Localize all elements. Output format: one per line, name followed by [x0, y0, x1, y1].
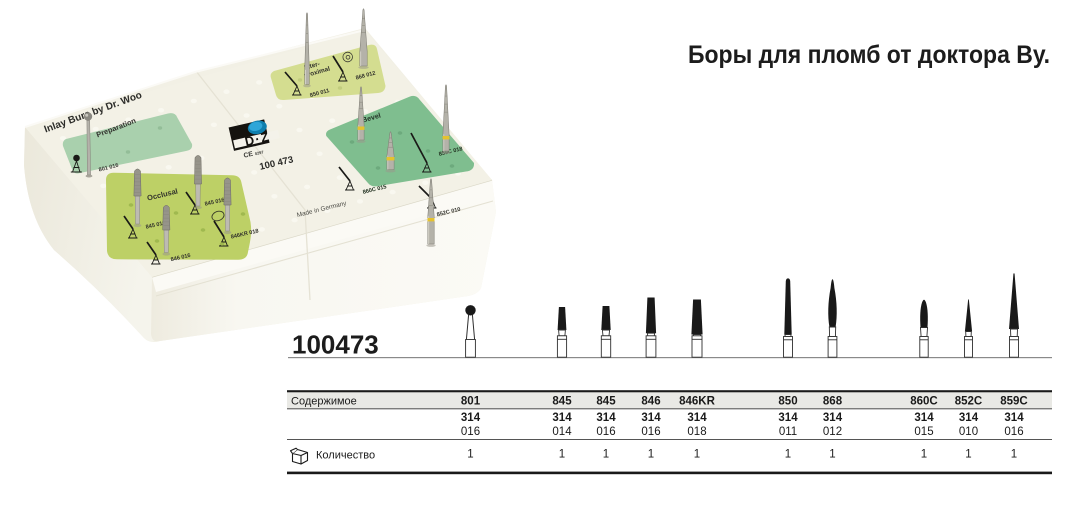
svg-text:314: 314 — [823, 412, 843, 424]
svg-text:868: 868 — [823, 396, 843, 408]
svg-text:846: 846 — [641, 396, 660, 408]
svg-text:314: 314 — [552, 412, 572, 424]
svg-text:1: 1 — [1011, 449, 1017, 461]
svg-text:314: 314 — [461, 412, 481, 424]
svg-text:1: 1 — [829, 449, 835, 461]
svg-text:1: 1 — [467, 449, 473, 461]
svg-text:1: 1 — [965, 449, 971, 461]
svg-text:860C: 860C — [910, 396, 938, 408]
svg-text:Содержимое: Содержимое — [291, 395, 357, 407]
svg-text:859C: 859C — [1000, 396, 1028, 408]
svg-text:845: 845 — [552, 396, 572, 408]
svg-text:Количество: Количество — [316, 450, 375, 462]
svg-text:314: 314 — [959, 412, 979, 424]
svg-text:015: 015 — [914, 426, 933, 438]
svg-text:016: 016 — [461, 426, 480, 438]
svg-text:850: 850 — [778, 396, 797, 408]
svg-text:845: 845 — [596, 396, 616, 408]
svg-text:1: 1 — [603, 449, 609, 461]
svg-text:1: 1 — [785, 449, 791, 461]
svg-text:314: 314 — [778, 412, 798, 424]
svg-text:016: 016 — [1004, 426, 1023, 438]
svg-text:846KR: 846KR — [679, 396, 715, 408]
svg-text:1: 1 — [694, 449, 700, 461]
svg-text:852C: 852C — [955, 396, 983, 408]
svg-text:016: 016 — [641, 426, 660, 438]
svg-text:012: 012 — [823, 426, 842, 438]
svg-text:314: 314 — [641, 412, 661, 424]
svg-text:1: 1 — [559, 449, 565, 461]
svg-text:011: 011 — [779, 426, 797, 438]
svg-text:018: 018 — [687, 426, 706, 438]
svg-text:014: 014 — [552, 426, 572, 438]
svg-text:100473: 100473 — [292, 330, 379, 360]
svg-text:314: 314 — [687, 412, 707, 424]
svg-text:010: 010 — [959, 426, 978, 438]
svg-text:016: 016 — [596, 426, 615, 438]
svg-text:314: 314 — [596, 412, 616, 424]
svg-text:1: 1 — [921, 449, 927, 461]
svg-text:314: 314 — [914, 412, 934, 424]
svg-text:801: 801 — [461, 396, 481, 408]
svg-text:1: 1 — [648, 449, 654, 461]
svg-text:Боры для пломб от доктора Ву.: Боры для пломб от доктора Ву. — [688, 41, 1050, 69]
svg-text:314: 314 — [1004, 412, 1024, 424]
